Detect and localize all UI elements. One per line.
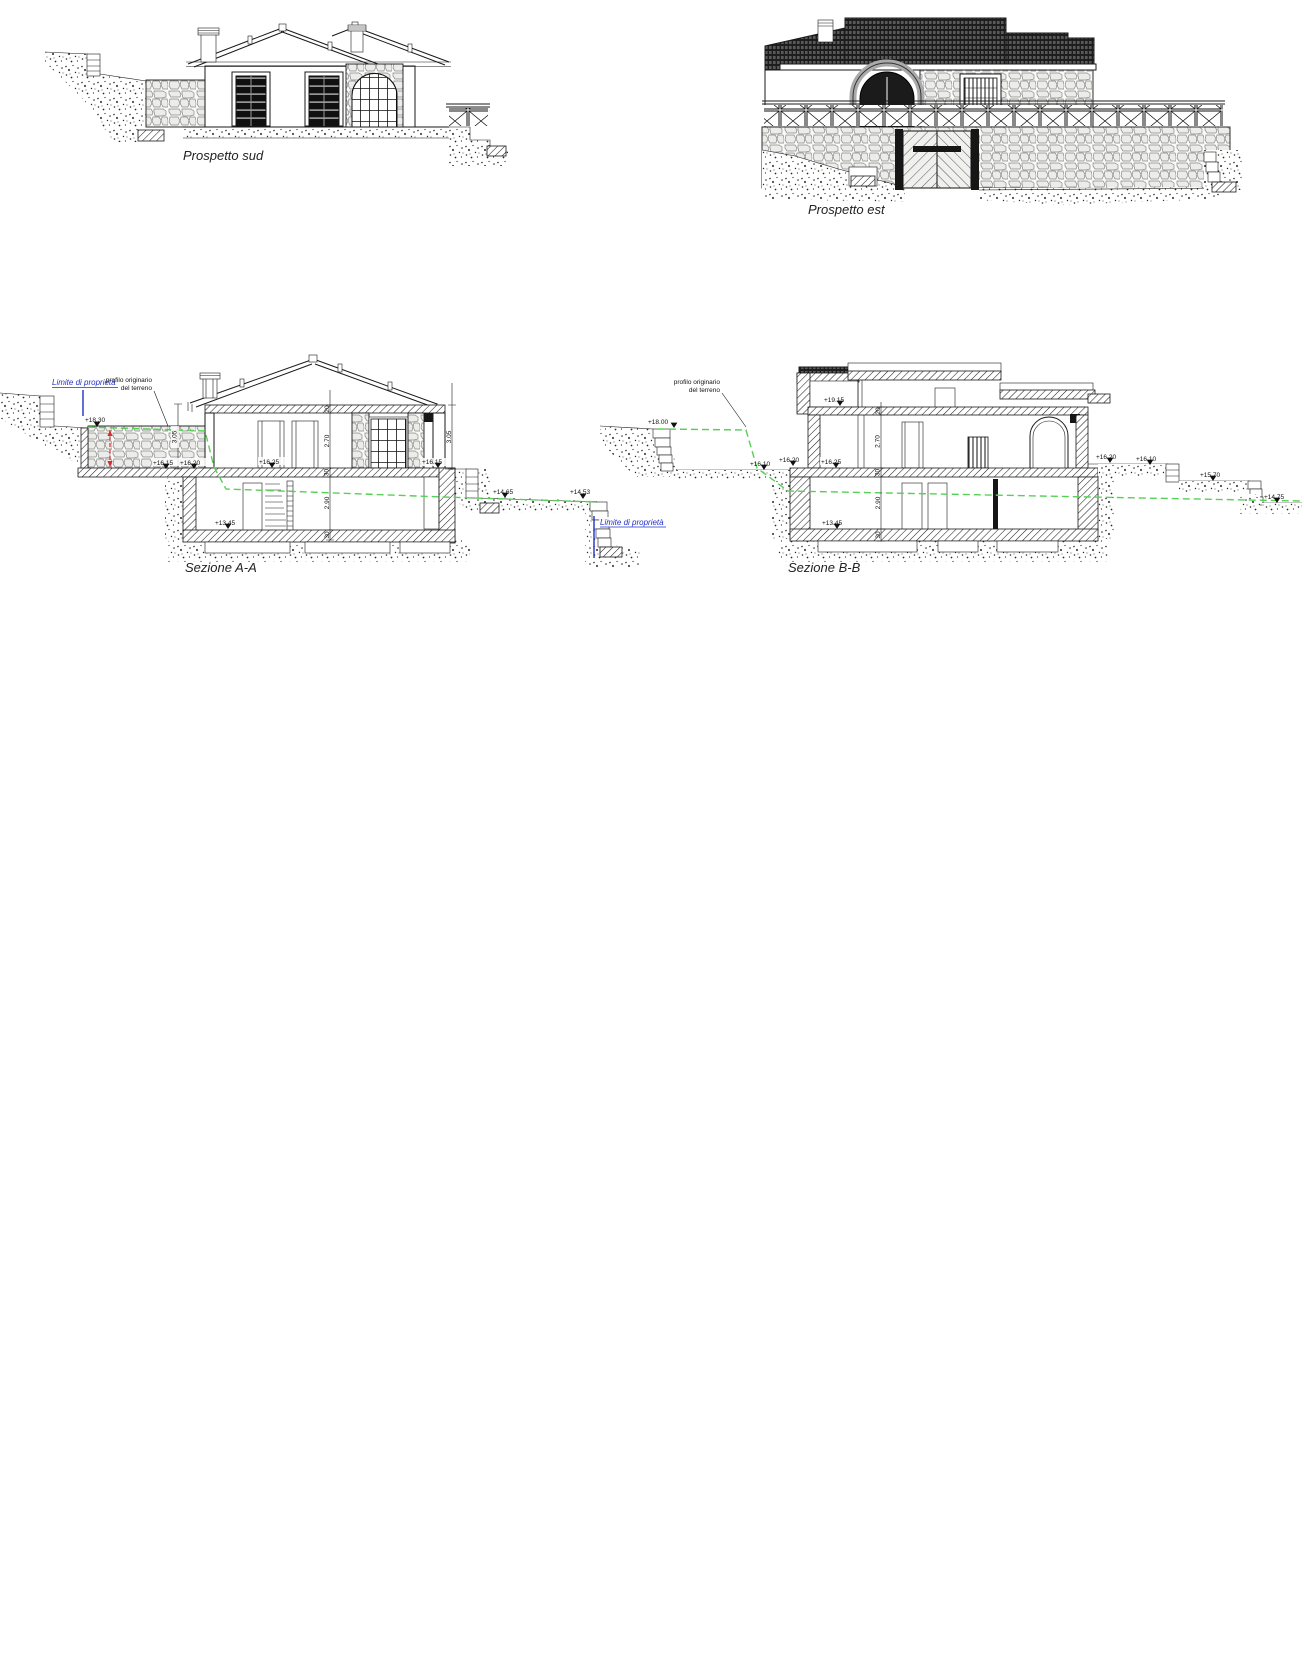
interior-door	[902, 422, 923, 468]
level-marker: +13.45	[822, 520, 842, 527]
basement-wall-right	[1078, 477, 1098, 531]
arched-niche	[1030, 417, 1068, 468]
basement-door	[928, 483, 947, 530]
basement-wall-left	[183, 477, 196, 531]
wall-right	[1076, 415, 1088, 468]
entrance-arch	[346, 64, 403, 127]
basement-stair	[265, 481, 293, 531]
sezione-bb-title: Sezione B-B	[788, 560, 861, 575]
dim-label: 2.70	[324, 434, 331, 447]
section-chimney	[200, 373, 220, 398]
dim-label: 30	[875, 469, 882, 477]
level-marker: +16.25	[821, 459, 841, 466]
drawing-sheet: Prospetto sud	[0, 0, 1304, 1654]
level-marker: +13.45	[215, 520, 235, 527]
dim-label: 2.90	[324, 496, 331, 509]
wall-left	[808, 415, 820, 468]
dim-label: 30	[875, 531, 882, 539]
dim-label: 20	[324, 405, 331, 413]
dim-label: 2.90	[875, 496, 882, 509]
dim-label: 2.70	[875, 435, 882, 448]
level-marker: +16.25	[259, 459, 279, 466]
roof-right	[1006, 33, 1068, 64]
property-limit-label: Limite di proprietà	[600, 518, 664, 527]
window-shuttered-right	[305, 72, 343, 126]
foundation-hatch	[138, 130, 164, 141]
terrain-profile-label: profilo originario	[674, 379, 721, 386]
chimney	[818, 20, 833, 42]
attic	[797, 363, 1110, 414]
sezione-aa-drawing: Limite di proprietà +18.30 profilo origi…	[0, 355, 669, 575]
excavation-stipple-left	[165, 478, 183, 540]
dim-label: 3.05	[172, 430, 179, 443]
floor-slab	[790, 468, 1098, 477]
foundation-slab	[790, 529, 1098, 541]
level-marker: +16.10	[750, 461, 770, 468]
foundation-slab	[183, 530, 455, 542]
dim-label: 20	[875, 407, 882, 415]
section-roof	[188, 355, 437, 413]
level-marker: +14.53	[570, 489, 590, 496]
boundary-wall-detail	[1204, 150, 1242, 192]
chimney-right	[348, 25, 366, 52]
stone-retaining-wall	[146, 80, 205, 127]
level-marker: +16.20	[779, 457, 799, 464]
sezione-aa-title: Sezione A-A	[185, 560, 257, 575]
stone-step	[87, 54, 100, 76]
dim-label: 30	[324, 469, 331, 477]
excavation-stipple-right	[1098, 466, 1114, 539]
dim-label: 30	[324, 531, 331, 539]
floor-slab	[78, 468, 455, 477]
grid-door	[369, 417, 408, 468]
window-shuttered-left	[232, 72, 270, 126]
eave-fascia	[780, 64, 1096, 70]
ceiling-slab	[808, 407, 1088, 415]
terrain-profile-label: del terreno	[689, 387, 720, 394]
dim-label: 3.05	[446, 430, 453, 443]
garage-door	[895, 129, 979, 190]
prospetto-est-title: Prospetto est	[808, 202, 886, 217]
prospetto-sud-title: Prospetto sud	[183, 148, 264, 163]
level-marker: +16.15	[153, 460, 173, 467]
level-marker: +15.70	[1200, 472, 1220, 479]
prospetto-sud-drawing: Prospetto sud	[45, 22, 508, 166]
stair-grill	[968, 437, 988, 468]
plans-svg: Prospetto sud	[0, 0, 1304, 1654]
railing	[446, 104, 490, 126]
basement-door	[902, 483, 922, 530]
prospetto-est-drawing: Prospetto est	[762, 18, 1242, 217]
sezione-bb-drawing: profilo originario del terreno +18.00 +1…	[600, 363, 1302, 575]
terrain-profile-label: del terreno	[121, 385, 152, 392]
level-marker: +18.00	[648, 419, 668, 426]
ground-band	[183, 127, 449, 138]
roof	[186, 22, 451, 67]
retaining-wall-right	[585, 502, 640, 567]
terrain-profile-label: profilo originario	[106, 377, 153, 384]
level-marker: +16.20	[180, 460, 200, 467]
excavation-stipple-left	[772, 479, 790, 539]
level-marker: +16.10	[1136, 456, 1156, 463]
interior-door	[292, 421, 318, 468]
level-marker: +14.75	[1264, 494, 1284, 501]
level-marker: +16.20	[1096, 454, 1116, 461]
basement-wall-left	[790, 477, 810, 531]
chimney-left	[198, 28, 219, 62]
dim-right-height: 3.05	[446, 383, 456, 470]
roof-center	[845, 18, 1006, 64]
